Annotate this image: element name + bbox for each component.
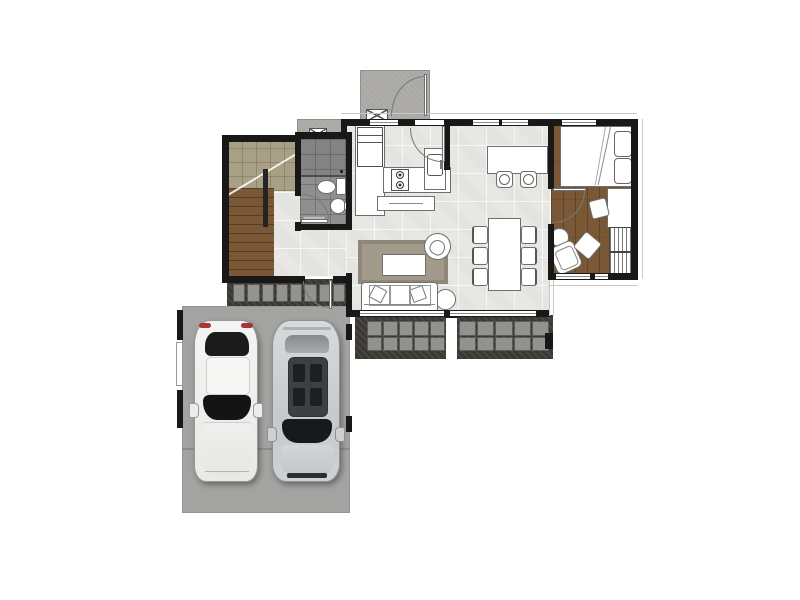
- sofa-seat: [389, 285, 411, 306]
- stair-side-wall: [263, 169, 268, 227]
- dining-chair: [521, 247, 537, 265]
- side-mirror: [189, 403, 199, 418]
- paver: [414, 321, 429, 336]
- paver: [477, 337, 494, 352]
- eave-line: [341, 113, 637, 114]
- side-mirror: [253, 403, 263, 418]
- panoramic-roof: [288, 357, 328, 417]
- window-bedroom-bottom: [595, 274, 608, 279]
- paver: [430, 337, 445, 352]
- toilet-bowl: [317, 180, 336, 194]
- wall-stair-bottom: [222, 276, 305, 283]
- paver: [367, 337, 382, 352]
- dining-chair: [521, 226, 537, 244]
- side-mirror: [267, 427, 277, 442]
- wall-bath-top: [295, 132, 350, 139]
- paver: [233, 284, 245, 302]
- window-living-bottom: [450, 311, 536, 316]
- paver: [477, 321, 494, 336]
- paver: [276, 284, 288, 302]
- fridge: [357, 127, 383, 167]
- shower-screen-knob: [340, 170, 343, 173]
- dining-chair: [472, 268, 488, 286]
- car-hood: [281, 445, 333, 475]
- seat: [293, 364, 305, 382]
- floor-plan: [0, 0, 800, 600]
- shower-screen: [300, 175, 348, 177]
- pillow: [614, 131, 632, 157]
- paver: [514, 321, 531, 336]
- rear-window: [285, 335, 329, 353]
- garage-wall-stub: [346, 416, 352, 432]
- dining-chair: [472, 226, 488, 244]
- paver: [367, 321, 382, 336]
- paver: [399, 337, 414, 352]
- wall-bedroom-divider: [548, 224, 554, 280]
- island-handle: [389, 203, 423, 204]
- paver: [383, 321, 398, 336]
- terrace-pavers-left: [367, 321, 445, 351]
- sliding-door-living: [360, 311, 444, 316]
- front-grille: [287, 473, 327, 478]
- bed: [560, 126, 634, 187]
- windshield: [282, 419, 332, 443]
- taillight: [199, 323, 211, 328]
- rear-window: [205, 332, 249, 356]
- windshield: [203, 395, 251, 420]
- dining-chair: [472, 247, 488, 265]
- taillight: [241, 323, 253, 328]
- dining-table: [488, 218, 521, 291]
- window-kitchen-top: [370, 120, 398, 125]
- paver: [383, 337, 398, 352]
- kitchen-door-leaf: [442, 126, 445, 162]
- door-gap-kitchen: [415, 120, 444, 125]
- eave-line: [642, 119, 643, 279]
- dining-chair: [521, 268, 537, 286]
- paver: [414, 337, 429, 352]
- wall-stair-top: [222, 135, 301, 142]
- garage-window: [176, 342, 183, 386]
- bar-stool-seat: [523, 174, 534, 185]
- garage-wall-stub: [177, 310, 183, 340]
- seat: [293, 388, 305, 406]
- window-bedroom-top: [562, 120, 596, 125]
- eave-line: [548, 285, 638, 286]
- bar-counter: [487, 146, 548, 174]
- pillow: [614, 158, 632, 184]
- wall-bath-bottom: [295, 224, 352, 230]
- window-living-top: [502, 120, 528, 125]
- terrace-gap: [446, 315, 457, 359]
- paver: [514, 337, 531, 352]
- bar-stool-seat: [499, 174, 510, 185]
- seat: [310, 388, 322, 406]
- paver: [495, 337, 512, 352]
- coffee-table: [382, 254, 426, 276]
- toilet-tank: [336, 178, 346, 195]
- sofa: [361, 282, 438, 313]
- front-bumper-line: [205, 471, 249, 472]
- paver: [247, 284, 259, 302]
- white-car: [194, 320, 258, 482]
- paver: [459, 321, 476, 336]
- paver: [290, 284, 302, 302]
- paver: [333, 284, 345, 302]
- garage-wall-stub: [346, 324, 352, 340]
- burner: [396, 181, 404, 189]
- paver: [262, 284, 274, 302]
- car-hood: [202, 422, 252, 475]
- rear-spoiler: [283, 327, 331, 330]
- garage-wall-stub: [177, 390, 183, 428]
- window-living-top: [473, 120, 499, 125]
- terrace-pavers-right: [459, 321, 549, 351]
- silver-car: [272, 320, 340, 482]
- paver: [459, 337, 476, 352]
- terrace-wall-stub: [545, 333, 553, 349]
- wall-stair-left: [222, 135, 229, 283]
- wall-bedroom-divider: [548, 119, 554, 189]
- paver: [495, 321, 512, 336]
- eave-line: [553, 280, 554, 316]
- wall-right: [631, 119, 638, 280]
- side-mirror: [335, 427, 345, 442]
- seat: [310, 364, 322, 382]
- paver: [430, 321, 445, 336]
- car-roof: [206, 357, 250, 395]
- window-bedroom-bottom: [556, 274, 590, 279]
- eave-line: [549, 280, 550, 316]
- paver: [399, 321, 414, 336]
- round-side-table: [435, 289, 456, 310]
- burner: [396, 171, 404, 179]
- wall-bath-right: [346, 132, 352, 230]
